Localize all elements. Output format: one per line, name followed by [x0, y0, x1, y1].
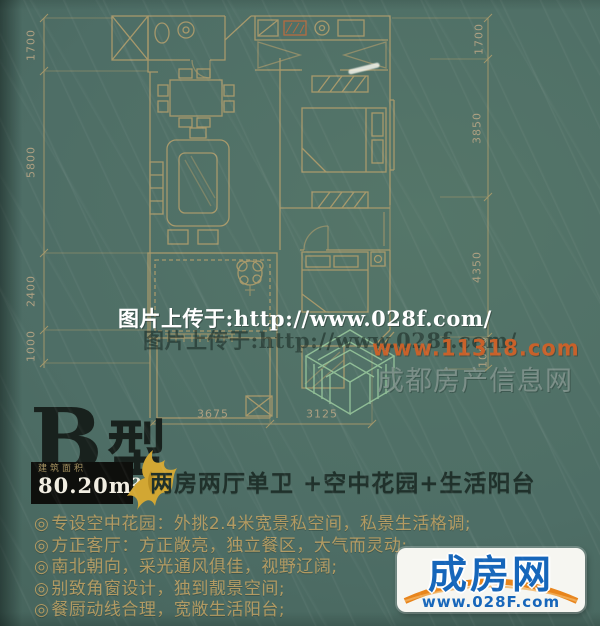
- area-box: 建筑面积 80.20m²: [31, 462, 133, 504]
- unit-summary: 两房两厅单卫 +空中花园+生活阳台: [150, 464, 536, 498]
- feature-item: ◎专设空中花园：外挑2.4米宽景私空间，私景生活格调;: [34, 514, 471, 536]
- plan-walls: [112, 16, 394, 418]
- bullet-icon: ◎: [34, 600, 49, 620]
- site-name-watermark: 成都房产信息网: [377, 359, 573, 398]
- dim-right-3: 4350: [471, 251, 484, 283]
- watermark-upload: 图片上传于:http://www.028f.com/: [118, 303, 492, 333]
- bullet-icon: ◎: [34, 536, 49, 556]
- dim-left-2: 5800: [25, 146, 38, 178]
- dim-left-4: 1000: [25, 330, 38, 362]
- dim-right-2: 3850: [471, 112, 484, 144]
- dim-right-1: 1700: [473, 23, 486, 55]
- bullet-icon: ◎: [34, 579, 49, 599]
- dim-left-1: 1700: [25, 29, 38, 61]
- brand-logo: 成房网 www.028F.com: [397, 548, 585, 612]
- dim-bottom-2: 3125: [306, 408, 338, 421]
- feature-text: 方正客厅：方正敞亮，独立餐区，大气而灵动;: [51, 536, 407, 556]
- site-url-watermark: www.11318.com: [372, 335, 580, 360]
- area-value: 80.20m²: [38, 474, 127, 498]
- feature-text: 别致角窗设计，独到靓景空间;: [51, 579, 285, 599]
- brand-name: 成房网: [397, 544, 585, 600]
- feature-text: 南北朝向，采光通风俱佳，视野辽阔;: [51, 557, 337, 577]
- brand-url: www.028F.com: [397, 593, 585, 611]
- dim-bottom-1: 3675: [197, 408, 229, 421]
- feature-text: 餐厨动线合理，宽敞生活阳台;: [51, 600, 285, 620]
- bullet-icon: ◎: [34, 557, 49, 577]
- feature-text: 专设空中花园：外挑2.4米宽景私空间，私景生活格调;: [51, 514, 471, 534]
- bullet-icon: ◎: [34, 514, 49, 534]
- dim-left-3: 2400: [25, 275, 38, 307]
- floorplan-flyer: 1700 5800 2400 1000 1700 3850 4350 1000 …: [0, 0, 600, 626]
